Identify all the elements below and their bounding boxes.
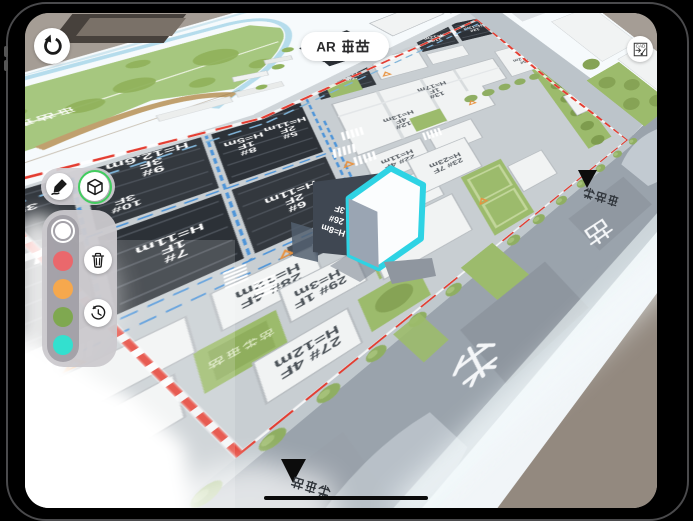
svg-text:AR: AR — [316, 40, 336, 55]
svg-text:CAD: CAD — [635, 43, 645, 48]
